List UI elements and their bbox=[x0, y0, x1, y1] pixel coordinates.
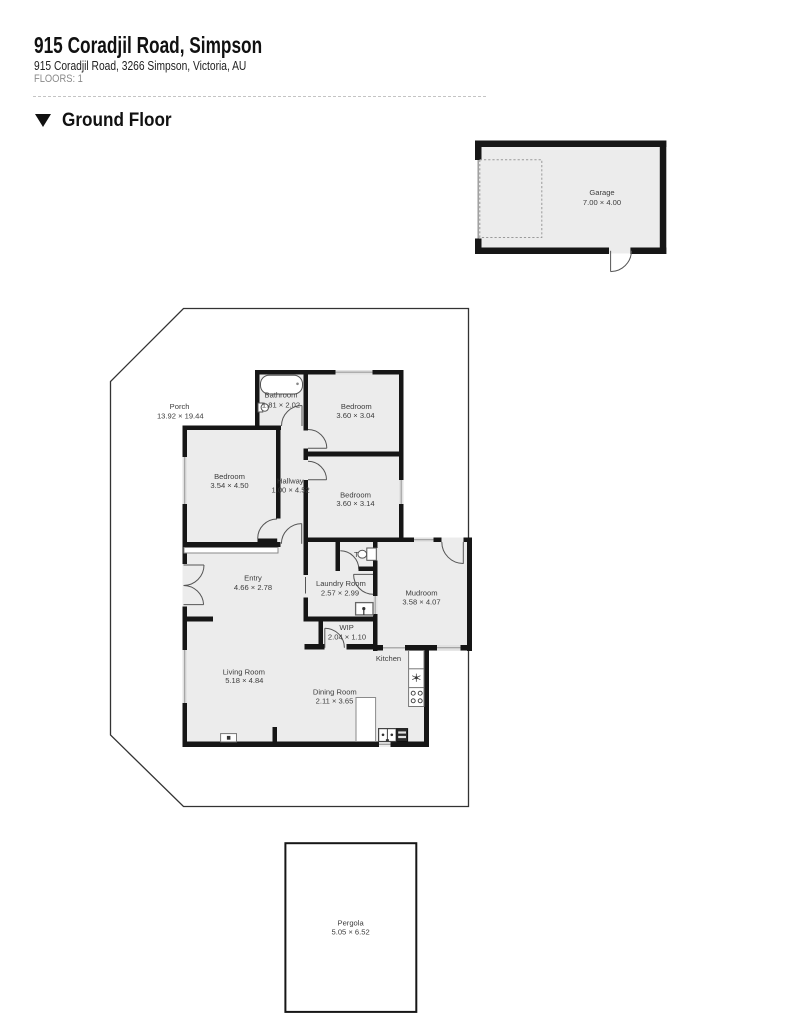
svg-text:3.54 × 4.50: 3.54 × 4.50 bbox=[210, 481, 248, 490]
svg-text:3.60 × 3.14: 3.60 × 3.14 bbox=[336, 499, 374, 508]
svg-text:4.66 × 2.78: 4.66 × 2.78 bbox=[234, 583, 272, 592]
svg-text:Garage: Garage bbox=[589, 188, 614, 197]
svg-text:Bedroom: Bedroom bbox=[341, 402, 372, 411]
svg-text:1.81 × 2.02: 1.81 × 2.02 bbox=[262, 400, 300, 409]
svg-text:3.60 × 3.04: 3.60 × 3.04 bbox=[336, 411, 374, 420]
svg-text:Mudroom: Mudroom bbox=[405, 589, 437, 598]
svg-text:2.11 × 3.65: 2.11 × 3.65 bbox=[316, 697, 354, 706]
svg-text:Dining Room: Dining Room bbox=[313, 688, 357, 697]
svg-text:1.00 × 4.52: 1.00 × 4.52 bbox=[271, 486, 309, 495]
svg-text:Pergola: Pergola bbox=[338, 919, 365, 928]
svg-text:7.00 × 4.00: 7.00 × 4.00 bbox=[583, 198, 621, 207]
svg-text:5.05 × 6.52: 5.05 × 6.52 bbox=[331, 928, 369, 937]
svg-text:13.92 × 19.44: 13.92 × 19.44 bbox=[157, 412, 204, 421]
svg-text:Bedroom: Bedroom bbox=[340, 490, 371, 499]
svg-text:Bathroom: Bathroom bbox=[265, 390, 298, 399]
svg-text:Bedroom: Bedroom bbox=[214, 472, 245, 481]
svg-text:WIP: WIP bbox=[339, 623, 353, 632]
svg-text:2.57 × 2.99: 2.57 × 2.99 bbox=[321, 589, 359, 598]
svg-text:Hallway: Hallway bbox=[277, 476, 304, 485]
svg-text:5.18 × 4.84: 5.18 × 4.84 bbox=[225, 676, 263, 685]
svg-text:2.04 × 1.10: 2.04 × 1.10 bbox=[328, 633, 366, 642]
svg-text:Kitchen: Kitchen bbox=[376, 654, 401, 663]
svg-text:Entry: Entry bbox=[244, 574, 262, 583]
svg-text:3.58 × 4.07: 3.58 × 4.07 bbox=[402, 598, 440, 607]
svg-text:Laundry Room: Laundry Room bbox=[316, 579, 366, 588]
svg-text:Porch: Porch bbox=[170, 402, 190, 411]
